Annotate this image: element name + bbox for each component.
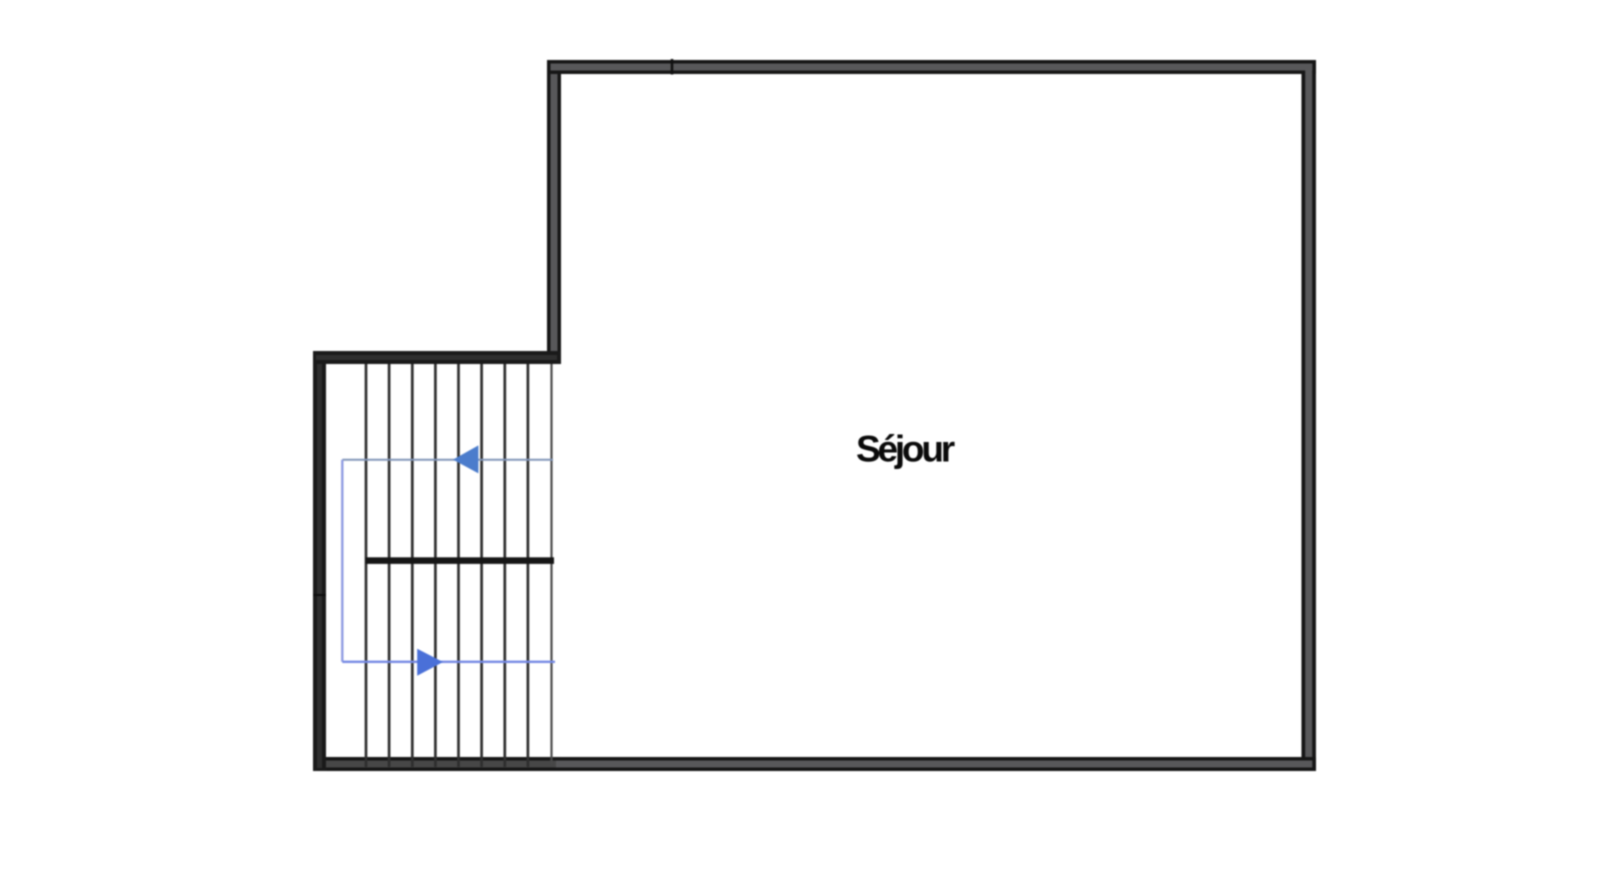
- svg-text:Séjour: Séjour: [856, 429, 955, 470]
